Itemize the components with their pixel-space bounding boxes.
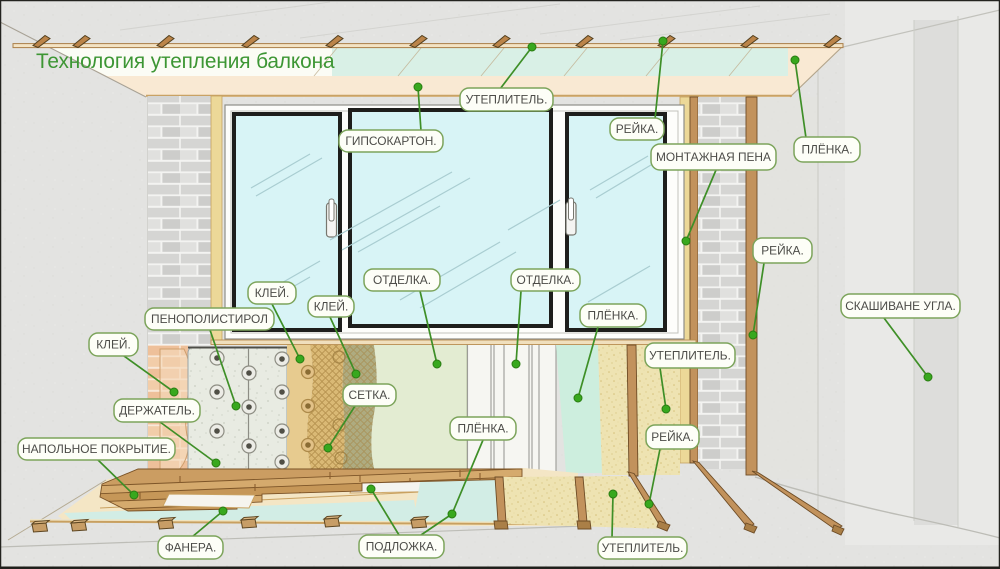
svg-text:ФАНЕРА.: ФАНЕРА. (165, 541, 217, 555)
svg-text:УТЕПЛИТЕЛЬ.: УТЕПЛИТЕЛЬ. (649, 349, 731, 363)
svg-text:НАПОЛЬНОЕ ПОКРЫТИЕ.: НАПОЛЬНОЕ ПОКРЫТИЕ. (22, 442, 171, 456)
svg-text:ГИПСОКАРТОН.: ГИПСОКАРТОН. (345, 134, 436, 148)
svg-text:РЕЙКА.: РЕЙКА. (651, 429, 694, 444)
svg-text:КЛЕЙ.: КЛЕЙ. (96, 337, 131, 352)
svg-text:СКАШИВАНЕ УГЛА.: СКАШИВАНЕ УГЛА. (845, 299, 956, 313)
svg-text:КЛЕЙ.: КЛЕЙ. (255, 285, 290, 300)
svg-text:ДЕРЖАТЕЛЬ.: ДЕРЖАТЕЛЬ. (119, 404, 195, 418)
svg-text:Технология утепления балкона: Технология утепления балкона (36, 50, 335, 73)
svg-text:УТЕПЛИТЕЛЬ.: УТЕПЛИТЕЛЬ. (602, 541, 684, 555)
svg-text:ОТДЕЛКА.: ОТДЕЛКА. (516, 273, 574, 287)
svg-text:МОНТАЖНАЯ ПЕНА: МОНТАЖНАЯ ПЕНА (656, 150, 771, 164)
svg-text:ПЛЁНКА.: ПЛЁНКА. (457, 422, 508, 436)
svg-text:ПОДЛОЖКА.: ПОДЛОЖКА. (366, 540, 438, 554)
svg-text:КЛЕЙ.: КЛЕЙ. (314, 299, 349, 314)
svg-text:ОТДЕЛКА.: ОТДЕЛКА. (373, 273, 431, 287)
svg-text:УТЕПЛИТЕЛЬ.: УТЕПЛИТЕЛЬ. (466, 93, 548, 107)
svg-text:ПЛЁНКА.: ПЛЁНКА. (587, 309, 638, 323)
svg-text:РЕЙКА.: РЕЙКА. (761, 243, 804, 258)
svg-text:СЕТКА.: СЕТКА. (349, 388, 391, 402)
svg-text:ПЕНОПОЛИСТИРОЛ: ПЕНОПОЛИСТИРОЛ (151, 312, 268, 326)
svg-text:ПЛЁНКА.: ПЛЁНКА. (801, 143, 852, 157)
svg-text:РЕЙКА.: РЕЙКА. (616, 121, 659, 136)
